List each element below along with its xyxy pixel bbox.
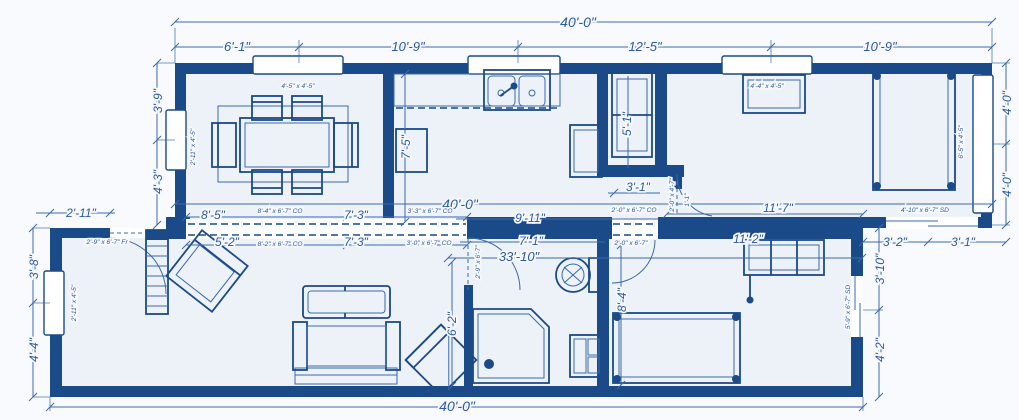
dim-bed2-height: 8'-4" (615, 287, 629, 312)
sliding-door-bedroom1 (886, 217, 978, 229)
label-window-bedroom1: 4'-4" x 4'-5" (750, 83, 784, 90)
label-sliding-door-bedroom1: 4'-10" x 6'-7" SD (901, 207, 949, 214)
dim-hall-3-1: 3'-1" (626, 180, 651, 194)
dim-left-upper-2: 4'-3" (151, 169, 165, 194)
dim-left-lower-2: 4'-4" (27, 337, 41, 362)
label-co-row1-a: 8'-4" x 6'-7" CO (258, 208, 303, 215)
label-front-door: 2'-9" x 6'-7" Fr (85, 239, 128, 246)
dim-top-seg-1: 6'-1" (224, 39, 251, 54)
dim-bath-wall: 6'-2" (445, 311, 459, 336)
dim-mid-left: 2'-11" (65, 206, 96, 220)
dim-top-overall: 40'-0" (560, 14, 597, 30)
dim-closet-height: 5'-1" (620, 111, 634, 136)
label-co-row2-b: 3'-0" x 6'-7" CO (407, 240, 452, 247)
label-sliding-door-bedroom2: 5'-9" x 6'-7" SD (845, 285, 852, 329)
sliding-door-bedroom2 (851, 276, 863, 337)
dim-row1-3: 9'-11" (515, 211, 545, 225)
window-kitchen-top (468, 56, 560, 74)
dim-row1-1: 8'-5" (201, 208, 226, 222)
dim-right-upper-1: 4'-0" (1000, 90, 1014, 115)
label-co-row2-a: 8'-2" x 6'-7" CO (258, 241, 303, 248)
dim-bed2-width: 11'-2" (733, 232, 763, 246)
dim-right-lower-1: 3'-10" (873, 253, 887, 284)
dim-bottom-right-1: 3'-2" (883, 235, 908, 249)
label-window-left-upper: 2'-11" x 4'-5" (190, 128, 197, 166)
label-door-bath: 2'-9" x 6'-7" (475, 245, 482, 280)
dim-right-lower-2: 4'-2" (873, 337, 887, 362)
label-window-dining: 4'-5" x 4'-5" (281, 83, 315, 90)
dim-row2-4: 33'-10" (499, 249, 541, 264)
label-co-hall: 2'-0" x 6'-7" CO (611, 207, 657, 214)
label-door-hall-small: 2'-0" x 4'-7" (669, 178, 676, 213)
dim-row2-3: 7'-1" (519, 234, 544, 248)
floor-plan-canvas: 40'-0" 6'-1" 10'-9" 12'-5" 10'-9" 3'-9" … (0, 0, 1019, 420)
window-dining-top (253, 56, 343, 74)
dim-top-seg-4: 10'-9" (863, 39, 898, 54)
window-bedroom1-top (722, 56, 812, 74)
dim-hall-1-1: 1'-1" (684, 193, 691, 207)
window-right (973, 75, 993, 213)
dim-row2-1: 5'-2" (215, 235, 240, 249)
dim-row2-2: 7'-3" (344, 235, 369, 249)
dim-kitchen-depth: 7'-5" (399, 134, 413, 159)
dim-top-seg-3: 12'-5" (628, 39, 663, 54)
label-door-bedroom2: 2'-0" x 6'-7" (613, 240, 648, 247)
dim-right-upper-2: 4'-0" (1000, 172, 1014, 197)
label-window-right: 6'-5" x 4'-5" (958, 125, 965, 159)
dim-row1-2: 7'-3" (344, 208, 369, 222)
dim-top-seg-2: 10'-9" (391, 39, 426, 54)
label-co-row1-b: 3'-3" x 6'-7" CO (408, 208, 453, 215)
label-window-left-lower: 2'-11" x 4'-5" (71, 284, 78, 322)
dim-left-upper-1: 3'-9" (151, 88, 165, 113)
dim-bottom-overall: 40'-0" (439, 398, 476, 414)
dim-bottom-right-2: 3'-1" (951, 235, 976, 249)
dim-left-lower-1: 3'-8" (27, 254, 41, 279)
drain-icon (484, 359, 494, 369)
floor-plan-drawing: 40'-0" 6'-1" 10'-9" 12'-5" 10'-9" 3'-9" … (0, 0, 1019, 420)
dim-row1-4: 11'-7" (763, 201, 793, 215)
